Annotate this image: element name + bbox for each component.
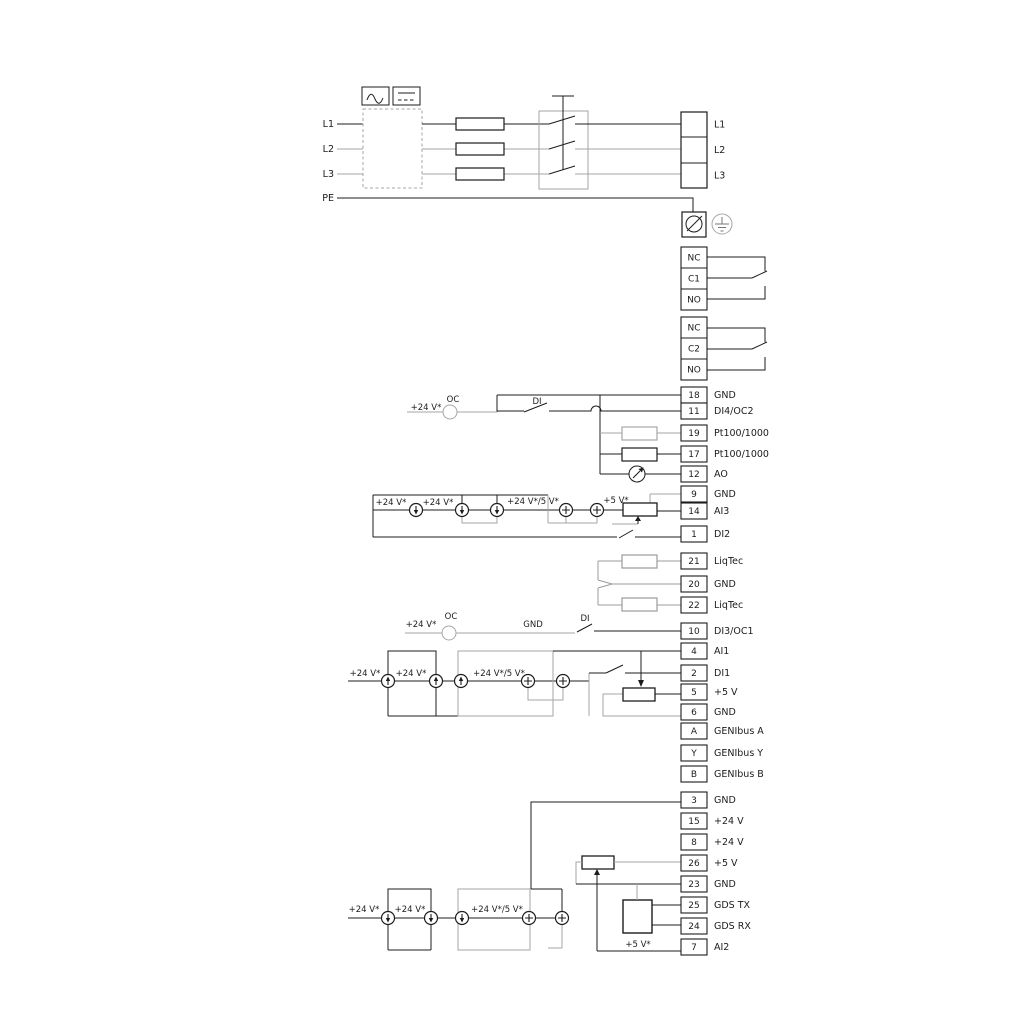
mains-output-label: L3: [714, 170, 725, 181]
terminal-number: Y: [690, 749, 697, 759]
wiring-diagram: 18GND11DI4/OC219Pt100/100017Pt100/100012…: [0, 0, 1024, 1024]
terminal-label: GENIbus Y: [714, 748, 763, 759]
di3-switch: [577, 624, 681, 632]
mains-input-label: L1: [323, 119, 334, 130]
liqtec-resistor-22: [622, 598, 657, 611]
mains-output-label: L1: [714, 120, 725, 131]
terminal-label: GDS RX: [714, 921, 751, 932]
current-source-icons: [382, 504, 604, 925]
power-section: [337, 87, 732, 237]
annotation-label: +24 V*: [406, 620, 437, 630]
liqtec-resistor-21: [622, 555, 657, 568]
annotation-label: +24 V*: [395, 905, 426, 915]
terminal-label: Pt100/1000: [714, 428, 769, 439]
terminal-number: 3: [691, 796, 697, 806]
relay2-contact: [707, 328, 767, 370]
annotation-label: GND: [523, 620, 543, 630]
switch-blades: [549, 116, 575, 174]
terminal-number: 2: [691, 669, 697, 679]
annotation-label: +24 V*: [349, 905, 380, 915]
wiper-arrow-up: [635, 516, 641, 521]
annotation-label: DI: [580, 614, 589, 624]
terminal-label: DI4/OC2: [714, 406, 754, 417]
terminal-number: 4: [691, 647, 697, 657]
io-group-a-wiring: [373, 395, 681, 538]
terminal-label: DI2: [714, 529, 730, 540]
terminal-label: AI2: [714, 942, 729, 953]
pt100-resistor-17: [622, 448, 657, 461]
relay-section: [707, 257, 767, 370]
annotation-label: +24 V*: [396, 669, 427, 679]
terminal-number: 18: [688, 391, 700, 401]
setpoint-potentiometer: [582, 856, 614, 869]
annotation-label: +24 V*/5 V*: [471, 905, 523, 915]
annotation-label: +24 V*: [376, 498, 407, 508]
terminal-number: 23: [688, 880, 699, 890]
annotation-label: OC: [445, 612, 458, 622]
annotation-label: +24 V*/5 V*: [473, 669, 525, 679]
di1-switch: [589, 665, 681, 673]
pt100-resistor-19: [622, 427, 657, 440]
ac-wave-glyph: [367, 94, 383, 103]
terminal-number: 19: [688, 429, 700, 439]
fuse-l1: [456, 118, 504, 130]
gnd18-rail: [497, 395, 681, 412]
terminal-label: AI3: [714, 506, 729, 517]
terminal-label: GND: [714, 707, 736, 718]
annotation-label: +5 V*: [603, 496, 628, 506]
di4-wire-jump: [549, 406, 681, 411]
annotation-label: +24 V*: [350, 669, 381, 679]
terminal-label: LiqTec: [714, 556, 743, 567]
dc-line-icon: [393, 87, 420, 105]
terminal-number: A: [691, 727, 698, 737]
relay-terminal-label: C2: [688, 345, 700, 355]
terminal-label: GND: [714, 390, 736, 401]
terminal-number: 17: [688, 450, 699, 460]
terminal-label: Pt100/1000: [714, 449, 769, 460]
terminal-number: 10: [688, 627, 700, 637]
fuse-l3: [456, 168, 504, 180]
relay1-contact: [707, 257, 767, 299]
terminal-number: 6: [691, 708, 697, 718]
terminal-label: GND: [714, 879, 736, 890]
terminal-label: GENIbus A: [714, 726, 764, 737]
terminal-number: 8: [691, 838, 697, 848]
liqtec-wiring: [598, 555, 681, 611]
terminal-number: 26: [688, 859, 700, 869]
terminal-number: 9: [691, 490, 697, 500]
annotation-label: +24 V*: [411, 403, 442, 413]
annotation-label: OC: [447, 395, 460, 405]
option-frame: [458, 651, 553, 716]
terminal-number: 25: [688, 901, 699, 911]
terminal-number: 7: [691, 943, 697, 953]
terminal-number: 14: [688, 507, 700, 517]
filter-box: [363, 109, 422, 188]
relay-terminal-label: NO: [687, 296, 701, 306]
terminal-number: 21: [688, 557, 699, 567]
ac-wave-icon: [362, 87, 389, 105]
di2-switch: [373, 530, 681, 538]
terminal-label: LiqTec: [714, 600, 743, 611]
terminal-label: GDS TX: [714, 900, 751, 911]
mains-input-label: L3: [323, 169, 334, 180]
fuse-l2: [456, 143, 504, 155]
terminal-label: AI1: [714, 646, 729, 657]
gds-sensor-box: [623, 900, 652, 933]
terminal-label: GENIbus B: [714, 769, 764, 780]
wiper-arrow-up-2: [594, 869, 600, 875]
terminal-label: +24 V: [714, 837, 744, 848]
terminal-label: GND: [714, 579, 736, 590]
terminal-label: +24 V: [714, 816, 744, 827]
relay-terminal-label: NC: [687, 254, 700, 264]
annotation-label: +24 V*: [423, 498, 454, 508]
terminal-label: DI3/OC1: [714, 626, 754, 637]
relay-terminal-label: NO: [687, 366, 701, 376]
mains-terminal-block: [681, 112, 707, 188]
terminal-number: 22: [688, 601, 699, 611]
terminal-number: 20: [688, 580, 700, 590]
mains-input-label: L2: [323, 144, 334, 155]
terminal-number: 24: [688, 922, 700, 932]
terminal-number: 15: [688, 817, 699, 827]
wiper-arrow-down: [638, 680, 644, 687]
terminal-label: GND: [714, 795, 736, 806]
pe-wire: [337, 198, 693, 212]
mains-input-label: PE: [322, 193, 334, 204]
annotation-label: +24 V*/5 V*: [507, 497, 559, 507]
switch-handle: [552, 96, 574, 170]
annotation-label: DI: [532, 397, 541, 407]
relay-terminal-label: C1: [688, 275, 700, 285]
terminal-number: 11: [688, 407, 699, 417]
io-group-d-wiring: [348, 802, 681, 951]
terminal-label: +5 V: [714, 687, 738, 698]
ai1-potentiometer: [623, 688, 655, 701]
terminal-label: AO: [714, 469, 728, 480]
terminal-label: +5 V: [714, 858, 738, 869]
mains-output-label: L2: [714, 145, 725, 156]
terminal-number: B: [691, 770, 697, 780]
terminal-number: 5: [691, 688, 697, 698]
wiring-diagram-page: 18GND11DI4/OC219Pt100/100017Pt100/100012…: [0, 0, 1024, 1024]
annotation-label: +5 V*: [625, 940, 650, 950]
oc2-output-icon: [443, 405, 457, 419]
relay-terminal-label: NC: [687, 324, 700, 334]
terminal-label: DI1: [714, 668, 730, 679]
terminal-number: 12: [688, 470, 699, 480]
terminal-number: 1: [691, 530, 697, 540]
terminal-label: GND: [714, 489, 736, 500]
oc1-output-icon: [442, 626, 456, 640]
